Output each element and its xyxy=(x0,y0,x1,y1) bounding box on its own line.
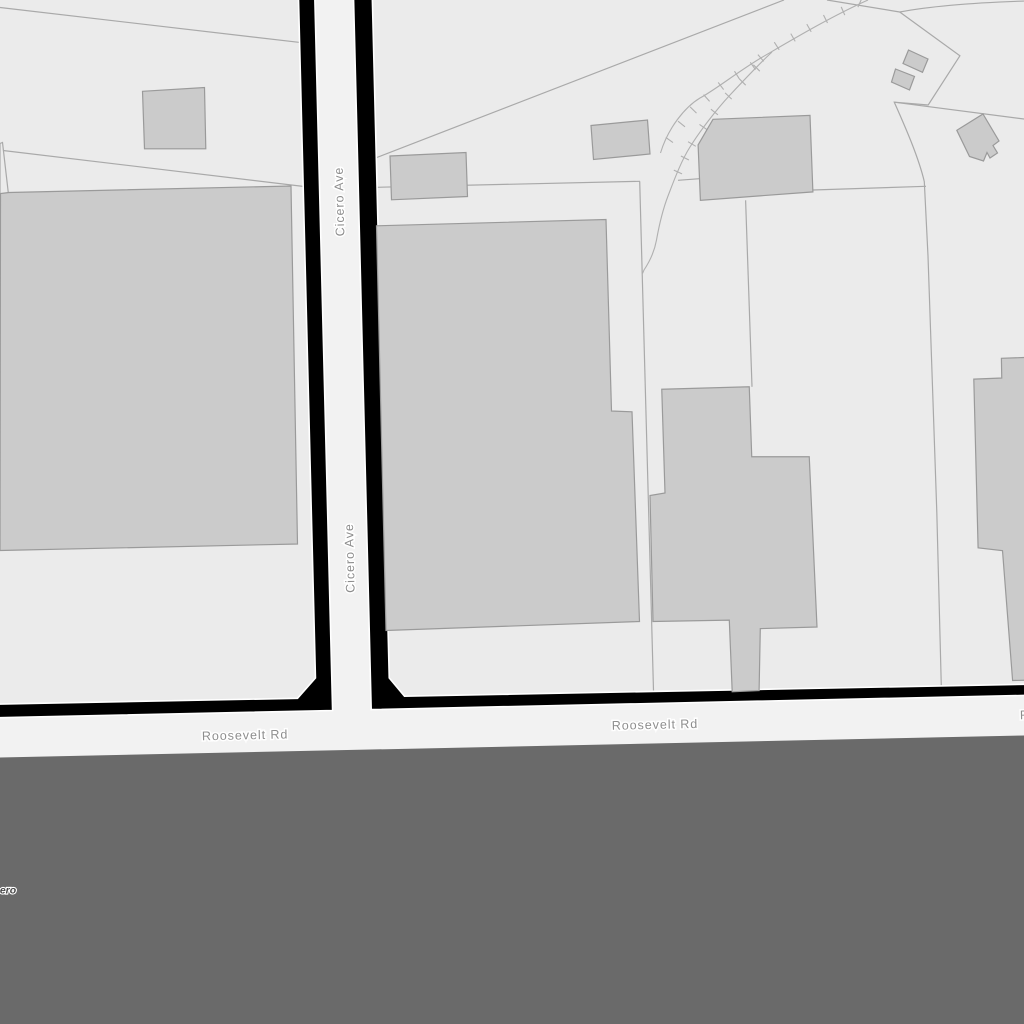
svg-text:Cicero Ave: Cicero Ave xyxy=(332,166,348,236)
svg-text:Roosevelt Rd: Roosevelt Rd xyxy=(1020,706,1024,722)
svg-text:Cicero Ave: Cicero Ave xyxy=(342,523,358,593)
svg-text:Roosevelt Rd: Roosevelt Rd xyxy=(202,727,289,743)
svg-text:Cicero: Cicero xyxy=(0,885,17,897)
svg-text:Roosevelt Rd: Roosevelt Rd xyxy=(612,717,699,733)
